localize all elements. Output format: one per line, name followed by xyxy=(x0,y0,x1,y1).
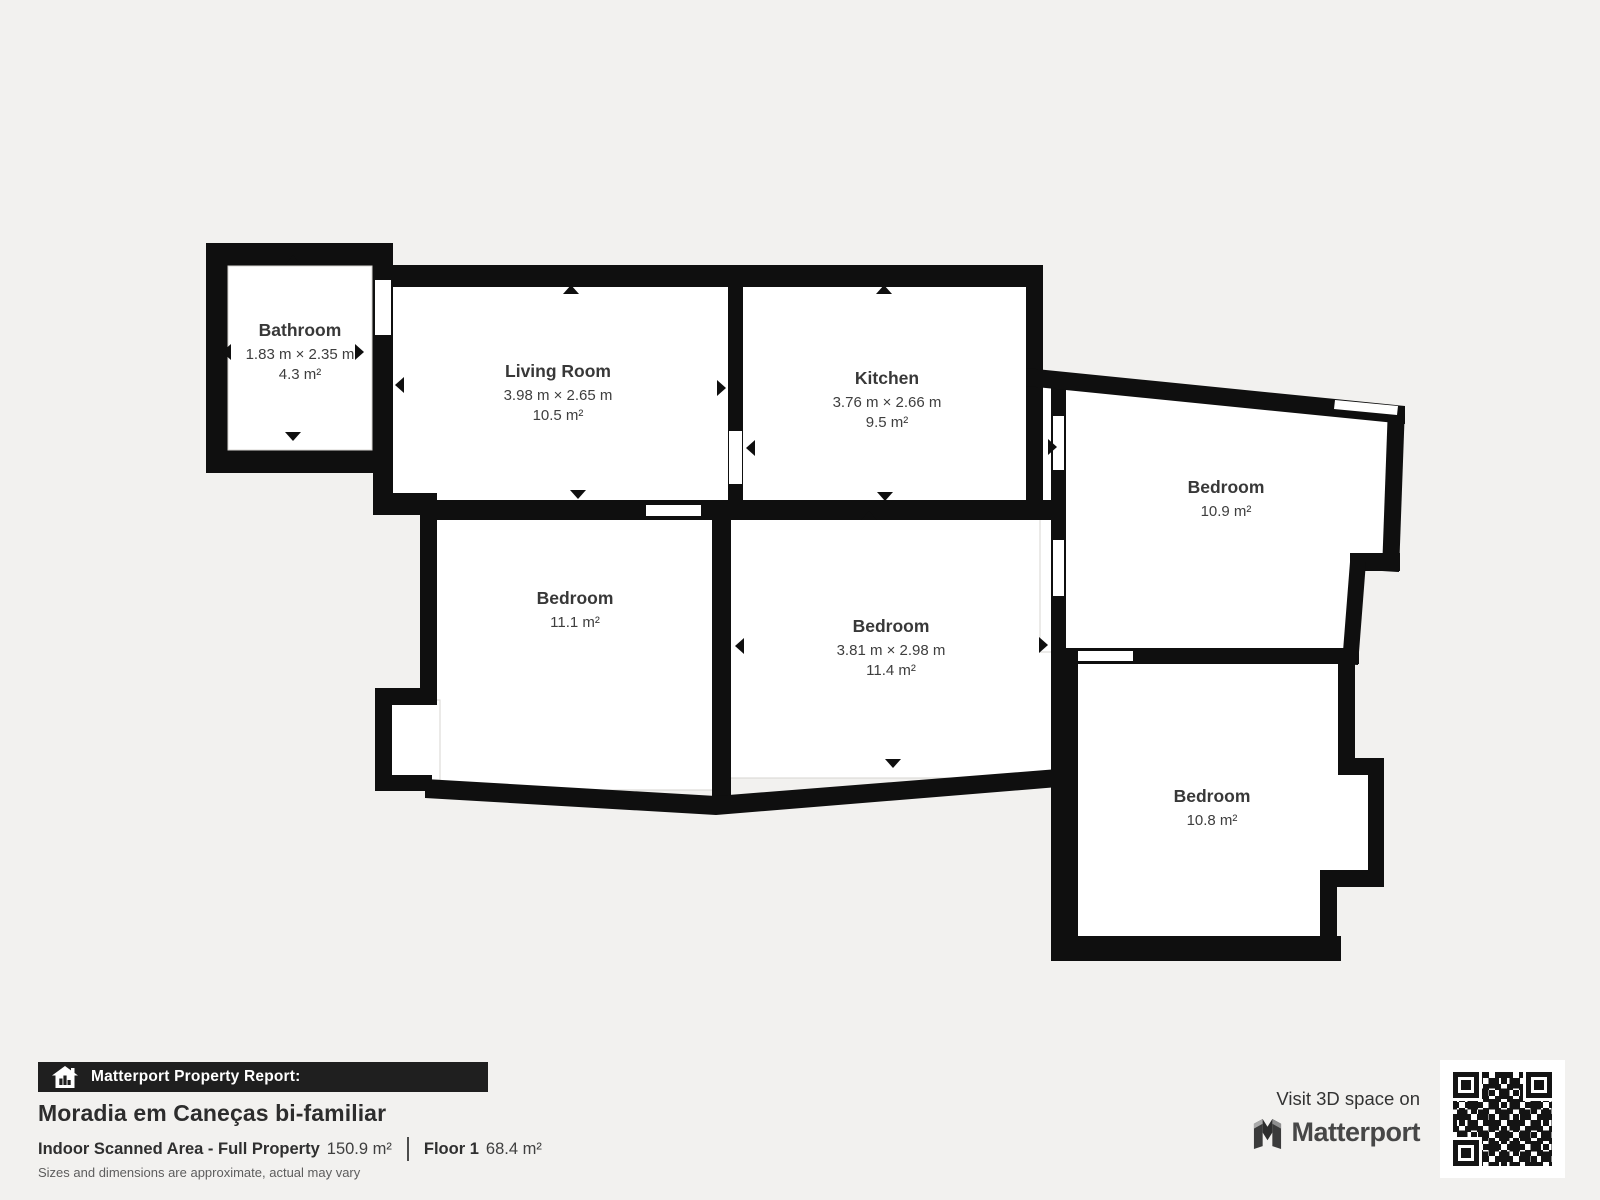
room-name: Living Room xyxy=(504,361,613,382)
room-label-kitchen: Kitchen 3.76 m × 2.66 m 9.5 m² xyxy=(833,368,942,433)
room-label-bedroom-left: Bedroom 11.1 m² xyxy=(537,588,614,633)
report-banner: Matterport Property Report: xyxy=(38,1062,488,1092)
matterport-logo-icon xyxy=(1252,1116,1283,1149)
room-label-bathroom: Bathroom 1.83 m × 2.35 m 4.3 m² xyxy=(246,320,355,385)
room-label-bedroom-bottom-right: Bedroom 10.8 m² xyxy=(1174,786,1251,831)
room-area: 4.3 m² xyxy=(246,365,355,385)
room-area: 10.8 m² xyxy=(1174,811,1251,831)
qr-code xyxy=(1440,1060,1565,1178)
property-title: Moradia em Caneças bi-familiar xyxy=(38,1100,386,1127)
qr-finder-bottom-left xyxy=(1453,1140,1479,1166)
room-area: 9.5 m² xyxy=(833,413,942,433)
room-area: 11.1 m² xyxy=(537,613,614,633)
stat-scanned-area-value: 150.9 m² xyxy=(327,1140,392,1159)
stat-floor-value: 68.4 m² xyxy=(486,1140,542,1159)
banner-label: Matterport Property Report: xyxy=(91,1068,301,1086)
house-chart-icon xyxy=(52,1066,78,1088)
room-area: 11.4 m² xyxy=(837,661,946,681)
room-label-living-room: Living Room 3.98 m × 2.65 m 10.5 m² xyxy=(504,361,613,426)
property-report-page: Bathroom 1.83 m × 2.35 m 4.3 m² Living R… xyxy=(0,0,1600,1200)
room-name: Bedroom xyxy=(537,588,614,609)
room-label-bedroom-center: Bedroom 3.81 m × 2.98 m 11.4 m² xyxy=(837,616,946,681)
room-name: Bedroom xyxy=(837,616,946,637)
stat-scanned-area-label: Indoor Scanned Area - Full Property xyxy=(38,1140,320,1159)
floor-plan xyxy=(0,0,1600,1200)
room-name: Bathroom xyxy=(246,320,355,341)
room-dimensions: 3.98 m × 2.65 m xyxy=(504,386,613,406)
room-dimensions: 3.81 m × 2.98 m xyxy=(837,641,946,661)
room-interiors xyxy=(228,266,1398,945)
room-area: 10.5 m² xyxy=(504,406,613,426)
visit-3d-space-cta: Visit 3D space on Matterport xyxy=(1252,1088,1421,1149)
room-label-bedroom-right: Bedroom 10.9 m² xyxy=(1188,477,1265,522)
matterport-wordmark: Matterport xyxy=(1292,1117,1421,1148)
qr-pattern xyxy=(1453,1072,1552,1166)
room-dimensions: 1.83 m × 2.35 m xyxy=(246,345,355,365)
room-name: Bedroom xyxy=(1188,477,1265,498)
qr-finder-top-right xyxy=(1526,1072,1552,1098)
cta-text: Visit 3D space on xyxy=(1252,1088,1421,1110)
room-name: Bedroom xyxy=(1174,786,1251,807)
qr-finder-top-left xyxy=(1453,1072,1479,1098)
area-stats: Indoor Scanned Area - Full Property 150.… xyxy=(38,1137,542,1161)
stat-divider xyxy=(407,1137,409,1161)
room-name: Kitchen xyxy=(833,368,942,389)
room-dimensions: 3.76 m × 2.66 m xyxy=(833,393,942,413)
disclaimer-text: Sizes and dimensions are approximate, ac… xyxy=(38,1165,360,1180)
room-area: 10.9 m² xyxy=(1188,502,1265,522)
matterport-logo: Matterport xyxy=(1252,1116,1421,1149)
stat-floor-label: Floor 1 xyxy=(424,1140,479,1159)
